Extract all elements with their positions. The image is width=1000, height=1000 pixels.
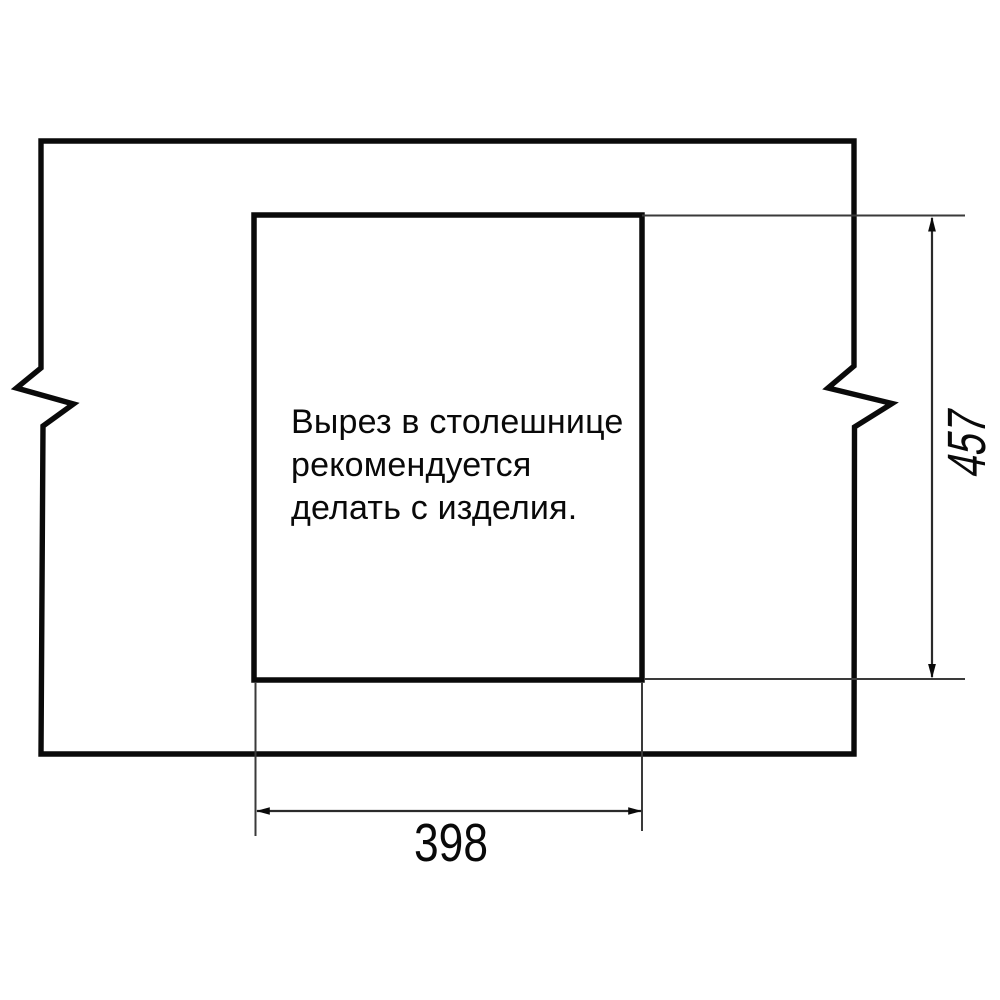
svg-text:457: 457 <box>937 404 997 482</box>
svg-text:делать с изделия.: делать с изделия. <box>291 489 577 527</box>
svg-text:Вырез в столешнице: Вырез в столешнице <box>291 403 623 441</box>
svg-text:рекомендуется: рекомендуется <box>291 446 531 484</box>
svg-text:398: 398 <box>414 813 488 873</box>
